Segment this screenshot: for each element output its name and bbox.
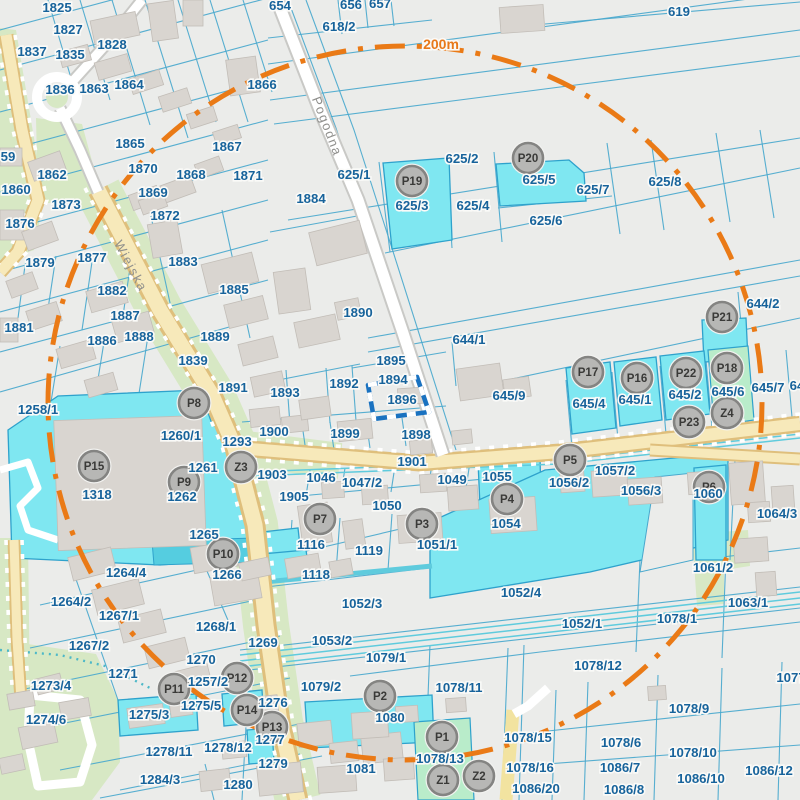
marker-P5[interactable]: P5 (553, 443, 588, 478)
parcel-label-1078-13: 1078/13 (416, 751, 464, 766)
parcel-label-1871: 1871 (233, 168, 262, 183)
parcel-label-1284-3: 1284/3 (140, 772, 180, 787)
marker-P18[interactable]: P18 (710, 351, 745, 386)
parcel-label-1047-2: 1047/2 (342, 475, 382, 490)
parcel-label-1271: 1271 (108, 666, 137, 681)
parcel-label-657: 657 (369, 0, 391, 11)
parcel-label-1264-4: 1264/4 (106, 565, 147, 580)
marker-P20[interactable]: P20 (511, 141, 546, 176)
parcel-label-1050: 1050 (372, 498, 401, 513)
parcel-label-1258-1: 1258/1 (18, 402, 58, 417)
parcel-label-645-1: 645/1 (618, 392, 651, 407)
marker-P19[interactable]: P19 (395, 164, 430, 199)
parcel-label-625-3: 625/3 (395, 198, 428, 213)
parcel-label-1049: 1049 (437, 472, 466, 487)
parcel-label-1893: 1893 (270, 385, 299, 400)
marker-label[interactable]: P21 (712, 312, 733, 324)
building (299, 396, 331, 420)
parcel-label-1078-9: 1078/9 (669, 701, 709, 716)
parcel-label-1900: 1900 (259, 424, 288, 439)
parcel-label-1883: 1883 (168, 254, 197, 269)
parcel-label-1275-5: 1275/5 (181, 698, 221, 713)
parcel-label-1064-3: 1064/3 (757, 506, 797, 521)
marker-label[interactable]: P14 (237, 705, 258, 717)
parcel-label-625-8: 625/8 (648, 174, 681, 189)
marker-P17[interactable]: P17 (571, 355, 606, 390)
parcel-label-1827: 1827 (53, 22, 82, 37)
parcel-label-1886: 1886 (87, 333, 116, 348)
parcel-label-1898: 1898 (401, 427, 430, 442)
parcel-label-1835: 1835 (55, 47, 84, 62)
marker-P23[interactable]: P23 (672, 405, 707, 440)
parcel-label-59: 59 (1, 149, 16, 164)
building (446, 697, 467, 712)
building (755, 571, 777, 596)
parcel-label-1261: 1261 (188, 460, 217, 475)
marker-Z4[interactable]: Z4 (710, 396, 745, 431)
parcel-label-645-4: 645/4 (572, 396, 606, 411)
marker-label[interactable]: P18 (717, 363, 738, 375)
parcel-label-654: 654 (269, 0, 292, 13)
parcel-label-1061-2: 1061/2 (693, 560, 733, 575)
parcel-label-1053-2: 1053/2 (312, 633, 352, 648)
parcel-label-1280: 1280 (223, 777, 252, 792)
parcel-label-1882: 1882 (97, 283, 126, 298)
marker-P7[interactable]: P7 (303, 502, 338, 537)
parcel-label-1078-15: 1078/15 (504, 730, 552, 745)
marker-label[interactable]: Z3 (234, 462, 247, 474)
parcel-label-1867: 1867 (212, 139, 241, 154)
parcel-label-1063-1: 1063/1 (728, 595, 768, 610)
parcel-label-1901: 1901 (397, 454, 426, 469)
parcel-label-1052-4: 1052/4 (501, 585, 542, 600)
marker-label[interactable]: P23 (679, 417, 699, 429)
parcel-label-1275-3: 1275/3 (129, 707, 169, 722)
marker-label[interactable]: P17 (578, 367, 598, 379)
marker-label[interactable]: P16 (627, 373, 647, 385)
parcel-label-1046: 1046 (306, 470, 335, 485)
parcel-label-1274-6: 1274/6 (26, 712, 66, 727)
parcel-label-1086-20: 1086/20 (512, 781, 560, 796)
marker-label[interactable]: Z4 (720, 408, 734, 420)
parcel-label-1836: 1836 (45, 82, 74, 97)
marker-P8[interactable]: P8 (177, 386, 212, 421)
parcel-label-645-9: 645/9 (492, 388, 525, 403)
parcel-label-1086-7: 1086/7 (600, 760, 640, 775)
parcel-label-1876: 1876 (5, 216, 34, 231)
parcel-label-619: 619 (668, 4, 690, 19)
parcel-label-1896: 1896 (387, 392, 416, 407)
parcel-label-1086-10: 1086/10 (677, 771, 725, 786)
building (648, 685, 667, 700)
marker-label[interactable]: P20 (518, 153, 538, 165)
parcel-label-1899: 1899 (330, 426, 359, 441)
parcel-label-1278-11: 1278/11 (146, 744, 193, 759)
parcel-label-1894: 1894 (378, 372, 408, 387)
parcel-label-1086-12: 1086/12 (745, 763, 793, 778)
parcel-label-1277: 1277 (255, 732, 284, 747)
parcel-label-1837: 1837 (17, 44, 46, 59)
parcel-label-1872: 1872 (150, 208, 179, 223)
marker-label[interactable]: P19 (402, 176, 422, 188)
parcel-label-1892: 1892 (329, 376, 358, 391)
marker-label[interactable]: P2 (373, 691, 387, 703)
parcel-label-1265: 1265 (189, 527, 218, 542)
parcel-label-1056-3: 1056/3 (621, 483, 661, 498)
parcel-label-1863: 1863 (79, 81, 108, 96)
parcel-label-625-6: 625/6 (529, 213, 562, 228)
parcel-label-625-1: 625/1 (337, 167, 370, 182)
building (733, 537, 769, 563)
parcel-label-656: 656 (340, 0, 362, 12)
parcel-label-1078-6: 1078/6 (601, 735, 641, 750)
parcel-label-1866: 1866 (247, 77, 276, 92)
parcel-label-1078-10: 1078/10 (669, 745, 717, 760)
parcel-label-1890: 1890 (343, 305, 372, 320)
parcel-label-625-5: 625/5 (522, 172, 555, 187)
marker-label[interactable]: P9 (177, 477, 191, 489)
parcel-label-1905: 1905 (279, 489, 308, 504)
radius-distance-label: 200m (423, 36, 459, 52)
parcel-label-1877: 1877 (77, 250, 106, 265)
marker-label[interactable]: P10 (213, 549, 233, 561)
parcel-label-1078-11: 1078/11 (436, 680, 483, 695)
parcel-label-1267-1: 1267/1 (99, 608, 139, 623)
parcel-label-1055: 1055 (482, 469, 511, 484)
parcel-label-1078-16: 1078/16 (506, 760, 554, 775)
parcel-label-625-7: 625/7 (576, 182, 609, 197)
parcel-label-1079-1: 1079/1 (366, 650, 406, 665)
marker-P16[interactable]: P16 (620, 361, 655, 396)
parcel-label-1266: 1266 (212, 567, 241, 582)
parcel-label-1293: 1293 (222, 434, 251, 449)
parcel-label-1273-4: 1273/4 (31, 678, 72, 693)
marker-label[interactable]: Z2 (472, 771, 485, 783)
parcel-label-618-2: 618/2 (322, 19, 355, 34)
parcel-label-1080: 1080 (375, 710, 404, 725)
parcel-label-1879: 1879 (25, 255, 54, 270)
marker-label[interactable]: P11 (164, 684, 184, 696)
parcel-label-1278-12: 1278/12 (204, 740, 252, 755)
marker-P1[interactable]: P1 (425, 720, 460, 755)
parcel-label-1318: 1318 (82, 487, 111, 502)
building (499, 4, 545, 33)
marker-label[interactable]: P4 (500, 494, 515, 506)
parcel-label-1828: 1828 (97, 37, 126, 52)
marker-label[interactable]: P1 (435, 732, 450, 744)
building (729, 461, 766, 505)
parcel-label-1078-12: 1078/12 (574, 658, 622, 673)
parcel-label-1864: 1864 (114, 77, 144, 92)
parcel-label-1056-2: 1056/2 (549, 475, 589, 490)
parcel-label-64: 64 (790, 378, 800, 393)
marker-P4[interactable]: P4 (490, 482, 525, 517)
parcel-label-1869: 1869 (138, 185, 167, 200)
building (183, 0, 203, 26)
marker-label[interactable]: Z1 (436, 775, 450, 787)
parcel-label-1262: 1262 (167, 489, 196, 504)
parcel-label-1267-2: 1267/2 (69, 638, 109, 653)
map-canvas[interactable]: P19P20P21P17P16P22P18P23Z4P8P15Z3P9P5P4P… (0, 0, 800, 800)
parcel-label-1057-2: 1057/2 (595, 463, 635, 478)
marker-label[interactable]: P8 (187, 398, 202, 410)
marker-P22[interactable]: P22 (669, 356, 704, 391)
parcel-label-1887: 1887 (110, 308, 139, 323)
parcel-label-1865: 1865 (115, 136, 144, 151)
building (273, 268, 311, 314)
parcel-label-1891: 1891 (218, 380, 247, 395)
parcel-label-1889: 1889 (200, 329, 229, 344)
parcel-label-1873: 1873 (51, 197, 80, 212)
parcel-label-1269: 1269 (248, 635, 277, 650)
parcel-label-1270: 1270 (186, 652, 215, 667)
parcel-label-1052-3: 1052/3 (342, 596, 382, 611)
parcel-label-1895: 1895 (376, 353, 405, 368)
parcel-label-645-7: 645/7 (751, 380, 784, 395)
marker-Z1[interactable]: Z1 (426, 763, 461, 798)
parcel-label-1264-2: 1264/2 (51, 594, 91, 609)
parcel-label-1868: 1868 (176, 167, 205, 182)
parcel-label-1116: 1116 (297, 537, 325, 552)
parcel-label-1079-2: 1079/2 (301, 679, 341, 694)
parcel-label-1903: 1903 (257, 467, 286, 482)
parcel-label-1077: 1077 (776, 670, 800, 685)
marker-Z3[interactable]: Z3 (224, 450, 259, 485)
parcel-label-645-2: 645/2 (668, 387, 701, 402)
marker-P15[interactable]: P15 (77, 449, 112, 484)
parcel-label-1884: 1884 (296, 191, 326, 206)
marker-label[interactable]: P22 (676, 368, 696, 380)
marker-label[interactable]: P7 (313, 514, 327, 526)
parcel-label-1119: 1119 (355, 543, 383, 558)
parcel-label-1862: 1862 (37, 167, 66, 182)
parcel-label-1870: 1870 (128, 161, 157, 176)
building (329, 558, 353, 578)
parcel-label-644-2: 644/2 (746, 296, 779, 311)
parcel-label-1825: 1825 (42, 0, 71, 15)
parcel-label-1086-8: 1086/8 (604, 782, 644, 797)
parcel-label-644-1: 644/1 (452, 332, 485, 347)
marker-label[interactable]: P5 (563, 455, 578, 467)
parcel-label-1268-1: 1268/1 (196, 619, 236, 634)
parcel-label-1885: 1885 (219, 282, 248, 297)
parcel-label-1279: 1279 (258, 756, 287, 771)
marker-label[interactable]: P12 (227, 673, 247, 685)
parcel-label-1060: 1060 (693, 486, 722, 501)
marker-P2[interactable]: P2 (363, 679, 398, 714)
parcel-label-625-4: 625/4 (456, 198, 490, 213)
marker-P21[interactable]: P21 (705, 300, 740, 335)
marker-label[interactable]: P15 (84, 461, 105, 473)
parcel-label-1054: 1054 (491, 516, 521, 531)
parcel-label-1118: 1118 (302, 567, 330, 582)
marker-label[interactable]: P3 (415, 519, 429, 531)
parcel-label-1276: 1276 (258, 695, 287, 710)
parcel-label-1860: 1860 (1, 182, 30, 197)
parcel-label-625-2: 625/2 (445, 151, 478, 166)
parcel-label-1260-1: 1260/1 (161, 428, 201, 443)
marker-Z2[interactable]: Z2 (462, 759, 497, 794)
cadastral-map[interactable]: P19P20P21P17P16P22P18P23Z4P8P15Z3P9P5P4P… (0, 0, 800, 800)
parcel-label-1888: 1888 (124, 329, 153, 344)
parcel-label-1078-1: 1078/1 (657, 611, 697, 626)
building (147, 0, 178, 41)
parcel-label-645-6: 645/6 (711, 384, 744, 399)
building (451, 429, 472, 445)
building (147, 220, 182, 259)
parcel-label-1839: 1839 (178, 353, 207, 368)
parcel-label-1257-2: 1257/2 (188, 674, 228, 689)
parcel-label-1052-1: 1052/1 (562, 616, 602, 631)
parcel-label-1051-1: 1051/1 (417, 537, 457, 552)
parcel-label-1881: 1881 (4, 320, 33, 335)
building (447, 485, 479, 511)
parcel-label-1081: 1081 (346, 761, 375, 776)
